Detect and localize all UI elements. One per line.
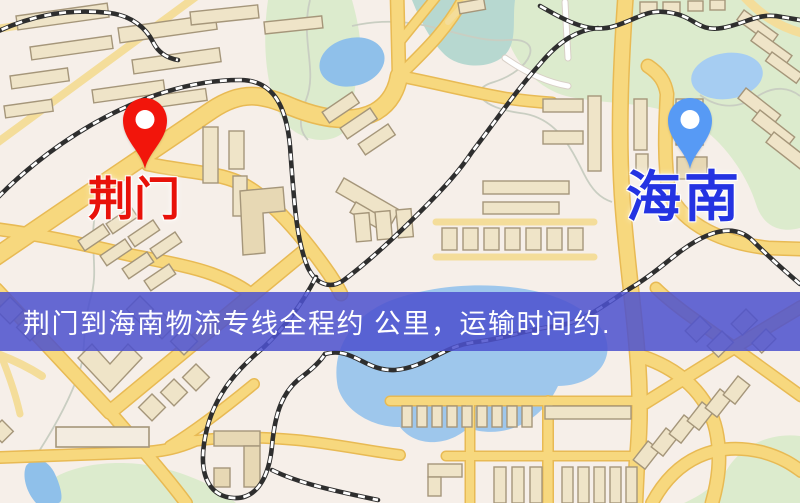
map-canvas [0, 0, 800, 503]
pin-hole [681, 110, 700, 129]
logistics-route-map: 荆门 海南 荆门到海南物流专线全程约 公里，运输时间约. [0, 0, 800, 503]
blue-location-pin-icon[interactable] [660, 91, 720, 171]
destination-label: 海南 [626, 170, 742, 225]
origin-label: 荆门 [88, 176, 180, 222]
pin-hole [136, 110, 155, 129]
red-location-pin-icon[interactable] [115, 91, 175, 171]
route-info-text: 荆门到海南物流专线全程约 公里，运输时间约. [23, 302, 611, 341]
route-info-banner: 荆门到海南物流专线全程约 公里，运输时间约. [0, 292, 800, 351]
